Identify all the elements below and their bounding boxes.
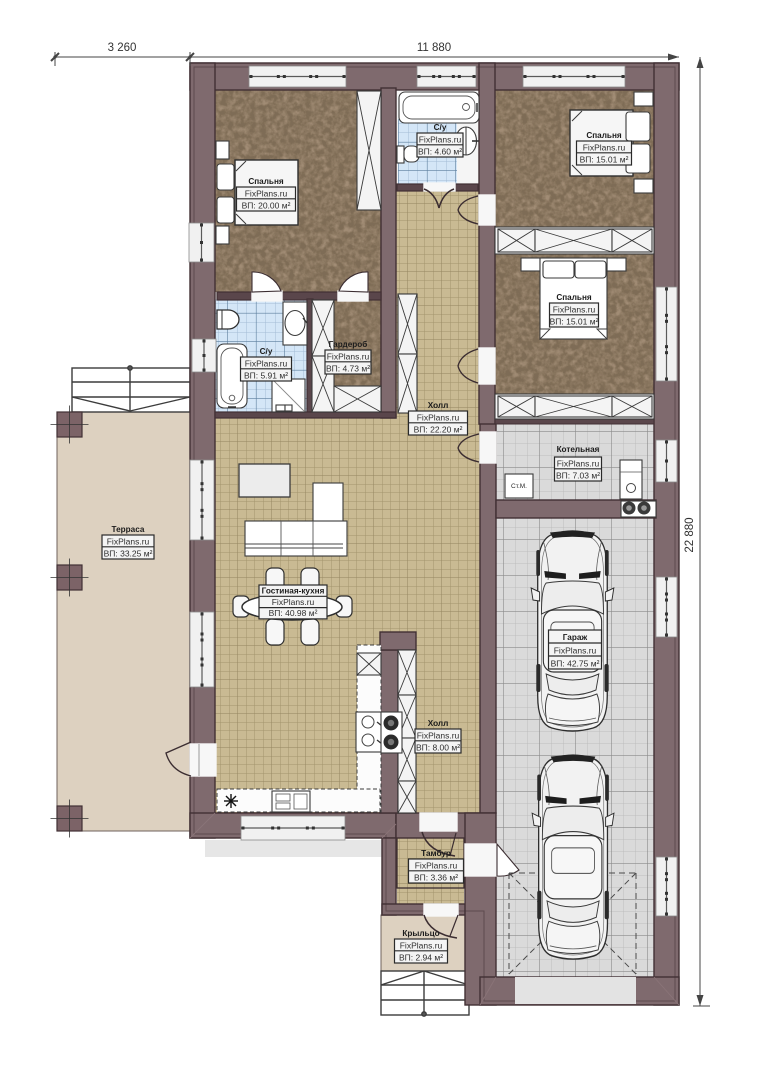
svg-text:Ст.М.: Ст.М. [511, 483, 527, 490]
svg-text:ВП: 15.01 м²: ВП: 15.01 м² [580, 154, 629, 164]
svg-text:ВП: 2.94 м²: ВП: 2.94 м² [399, 952, 443, 962]
svg-text:Спальня: Спальня [586, 131, 622, 140]
svg-text:Гараж: Гараж [563, 633, 588, 642]
svg-text:FixPlans.ru: FixPlans.ru [272, 597, 315, 607]
svg-text:FixPlans.ru: FixPlans.ru [417, 730, 460, 740]
svg-text:С/у: С/у [434, 123, 447, 132]
svg-text:ВП: 4.73 м²: ВП: 4.73 м² [326, 363, 370, 373]
svg-text:FixPlans.ru: FixPlans.ru [554, 645, 597, 655]
svg-text:FixPlans.ru: FixPlans.ru [327, 351, 370, 361]
svg-text:ВП: 7.03 м²: ВП: 7.03 м² [556, 470, 600, 480]
svg-text:FixPlans.ru: FixPlans.ru [245, 358, 288, 368]
svg-text:ВП: 15.01 м²: ВП: 15.01 м² [550, 316, 599, 326]
svg-text:Крыльцо: Крыльцо [402, 929, 439, 938]
svg-text:3 260: 3 260 [108, 42, 137, 54]
svg-text:FixPlans.ru: FixPlans.ru [419, 134, 462, 144]
svg-text:Спальня: Спальня [556, 293, 592, 302]
svg-text:ВП: 22.20 м²: ВП: 22.20 м² [414, 424, 463, 434]
svg-text:ВП: 42.75 м²: ВП: 42.75 м² [551, 658, 600, 668]
svg-text:11 880: 11 880 [417, 42, 451, 54]
svg-text:ВП: 40.98 м²: ВП: 40.98 м² [269, 608, 318, 618]
svg-text:FixPlans.ru: FixPlans.ru [583, 142, 626, 152]
svg-text:Тамбур: Тамбур [421, 848, 451, 858]
svg-text:Котельная: Котельная [557, 445, 600, 454]
svg-text:ВП: 8.00 м²: ВП: 8.00 м² [416, 742, 460, 752]
svg-text:FixPlans.ru: FixPlans.ru [553, 304, 596, 314]
svg-text:Спальня: Спальня [248, 177, 284, 186]
svg-text:Гардероб: Гардероб [329, 339, 368, 349]
svg-text:FixPlans.ru: FixPlans.ru [400, 940, 443, 950]
svg-text:FixPlans.ru: FixPlans.ru [245, 188, 288, 198]
svg-text:Терраса: Терраса [112, 525, 145, 534]
svg-text:С/у: С/у [260, 347, 273, 356]
svg-text:ВП: 4.60 м²: ВП: 4.60 м² [418, 146, 462, 156]
svg-text:Гостиная-кухня: Гостиная-кухня [262, 587, 325, 596]
svg-text:ВП: 33.25 м²: ВП: 33.25 м² [104, 548, 153, 558]
svg-text:ВП: 5.91 м²: ВП: 5.91 м² [244, 370, 288, 380]
svg-text:FixPlans.ru: FixPlans.ru [557, 458, 600, 468]
svg-text:Холл: Холл [428, 719, 449, 728]
svg-text:22 880: 22 880 [684, 517, 696, 552]
svg-text:ВП: 20.00 м²: ВП: 20.00 м² [242, 200, 291, 210]
svg-text:Холл: Холл [428, 401, 449, 410]
svg-text:ВП: 3.36 м²: ВП: 3.36 м² [414, 872, 458, 882]
svg-text:FixPlans.ru: FixPlans.ru [107, 536, 150, 546]
svg-text:FixPlans.ru: FixPlans.ru [417, 412, 460, 422]
svg-text:FixPlans.ru: FixPlans.ru [415, 860, 458, 870]
